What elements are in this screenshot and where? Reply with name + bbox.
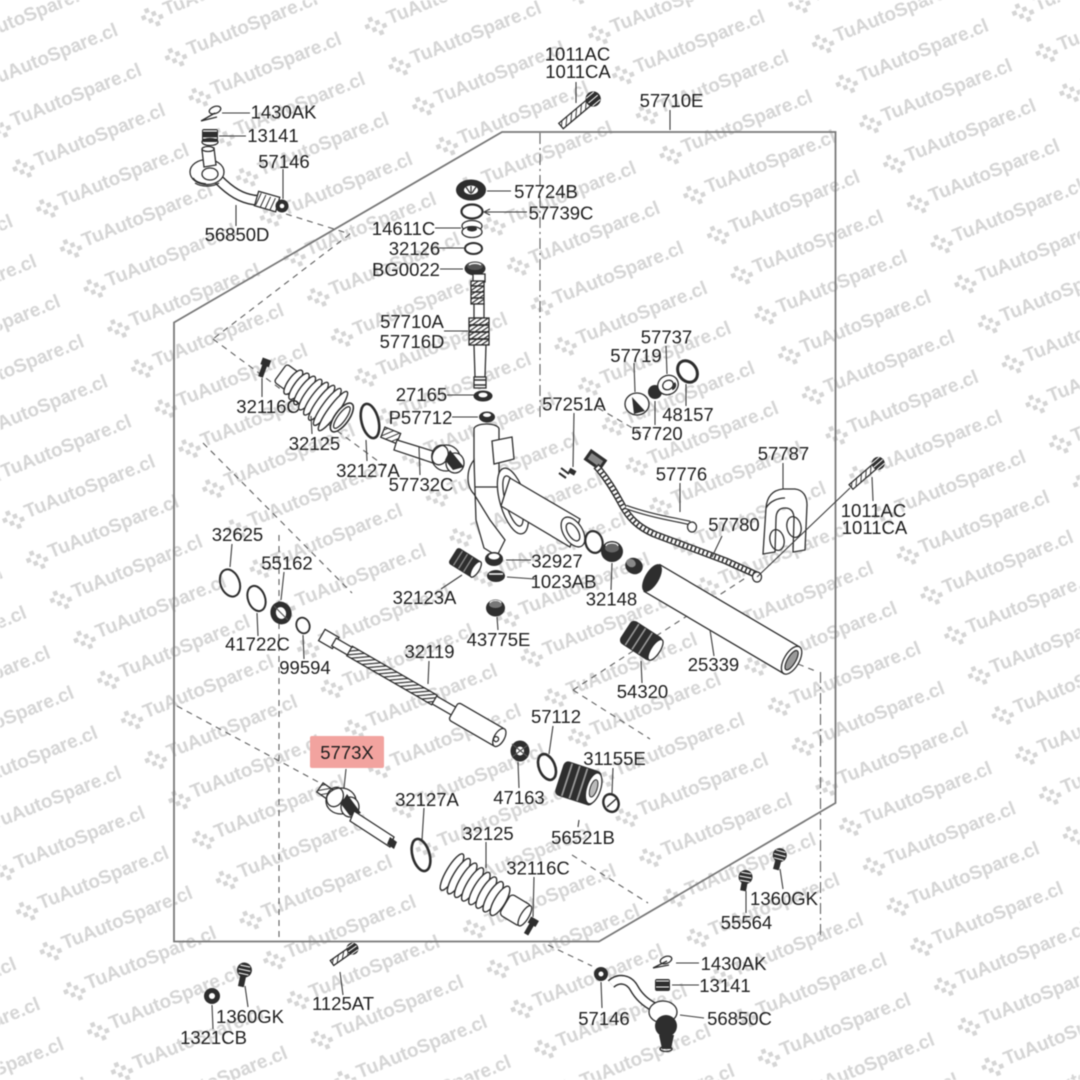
svg-text:56850D: 56850D bbox=[205, 224, 270, 245]
svg-text:57739C: 57739C bbox=[529, 203, 594, 224]
svg-text:48157: 48157 bbox=[662, 404, 713, 425]
svg-text:57720: 57720 bbox=[631, 423, 682, 444]
svg-text:32126: 32126 bbox=[389, 238, 440, 259]
svg-text:57780: 57780 bbox=[708, 514, 759, 535]
svg-text:57710E: 57710E bbox=[640, 90, 704, 111]
svg-text:43775E: 43775E bbox=[467, 629, 531, 650]
svg-text:1011CA: 1011CA bbox=[545, 61, 611, 82]
svg-text:55162: 55162 bbox=[261, 553, 312, 574]
svg-text:32125: 32125 bbox=[462, 823, 513, 844]
svg-text:5773X: 5773X bbox=[320, 742, 374, 763]
svg-text:57724B: 57724B bbox=[514, 181, 578, 202]
svg-text:31155E: 31155E bbox=[583, 748, 645, 769]
svg-text:13141: 13141 bbox=[247, 125, 298, 146]
svg-text:57112: 57112 bbox=[531, 706, 581, 727]
svg-text:57732C: 57732C bbox=[389, 474, 454, 495]
svg-text:47163: 47163 bbox=[493, 787, 544, 808]
svg-text:13141: 13141 bbox=[699, 975, 750, 996]
svg-text:1360GK: 1360GK bbox=[216, 1006, 285, 1027]
svg-text:1430AK: 1430AK bbox=[701, 953, 767, 974]
svg-text:25339: 25339 bbox=[688, 654, 739, 675]
svg-text:27165: 27165 bbox=[396, 384, 447, 405]
svg-text:32125: 32125 bbox=[289, 433, 340, 454]
svg-text:56850C: 56850C bbox=[707, 1008, 772, 1029]
svg-text:55564: 55564 bbox=[721, 912, 772, 933]
svg-text:57710A: 57710A bbox=[380, 311, 444, 332]
svg-text:32148: 32148 bbox=[586, 589, 637, 610]
svg-text:1011CA: 1011CA bbox=[842, 517, 908, 538]
svg-text:32123A: 32123A bbox=[393, 587, 457, 608]
svg-text:57146: 57146 bbox=[258, 151, 309, 172]
svg-text:1430AK: 1430AK bbox=[251, 102, 317, 123]
svg-text:32119: 32119 bbox=[404, 641, 454, 662]
svg-text:57716D: 57716D bbox=[380, 331, 445, 352]
svg-text:BG0022: BG0022 bbox=[372, 259, 440, 280]
svg-text:56521B: 56521B bbox=[551, 827, 615, 848]
svg-text:32127A: 32127A bbox=[395, 789, 459, 810]
svg-text:32625: 32625 bbox=[212, 524, 263, 545]
svg-text:1321CB: 1321CB bbox=[180, 1027, 247, 1048]
svg-text:32116C: 32116C bbox=[236, 396, 299, 417]
svg-text:57146: 57146 bbox=[578, 1008, 629, 1029]
svg-text:57251A: 57251A bbox=[542, 394, 606, 415]
svg-text:41722C: 41722C bbox=[225, 634, 290, 655]
svg-text:1360GK: 1360GK bbox=[750, 888, 819, 909]
svg-text:57719: 57719 bbox=[610, 345, 661, 366]
svg-text:99594: 99594 bbox=[279, 657, 330, 678]
svg-text:32116C: 32116C bbox=[506, 858, 569, 879]
svg-text:P57712: P57712 bbox=[389, 407, 453, 428]
svg-text:54320: 54320 bbox=[617, 681, 668, 702]
svg-text:57787: 57787 bbox=[758, 443, 809, 464]
svg-text:14611C: 14611C bbox=[372, 218, 435, 239]
svg-text:57776: 57776 bbox=[656, 464, 707, 485]
svg-text:1125AT: 1125AT bbox=[312, 993, 374, 1014]
svg-text:32927: 32927 bbox=[531, 551, 582, 572]
